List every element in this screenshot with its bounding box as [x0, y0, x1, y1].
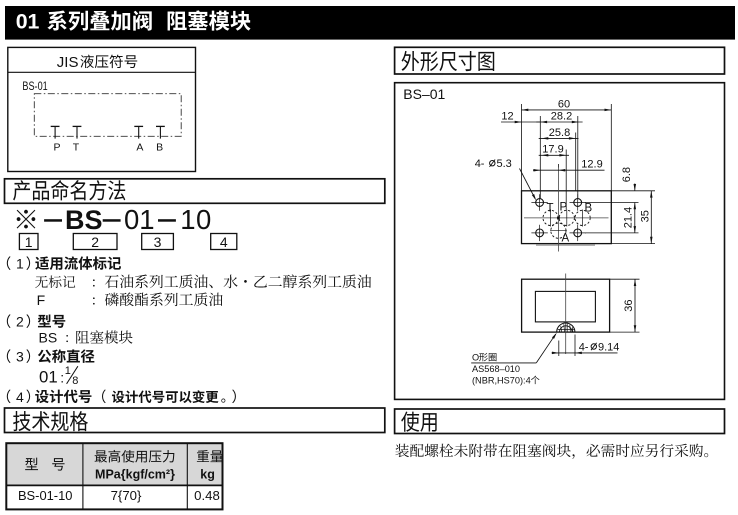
svg-text:B: B	[156, 142, 163, 154]
svg-text:BS-01: BS-01	[22, 79, 47, 93]
svg-text:BS: BS	[65, 205, 103, 235]
svg-text:T: T	[73, 142, 80, 154]
svg-text:25.8: 25.8	[549, 127, 570, 139]
svg-text:60: 60	[558, 98, 570, 110]
svg-text:28.2: 28.2	[551, 111, 572, 123]
svg-text:5.3: 5.3	[497, 158, 512, 170]
svg-text:8: 8	[72, 375, 78, 387]
svg-text:7{70}: 7{70}	[111, 488, 142, 503]
svg-text:4: 4	[220, 234, 228, 250]
svg-text:4-: 4-	[475, 158, 485, 170]
svg-text:(NBR,HS70):4: (NBR,HS70):4	[472, 375, 531, 385]
svg-text:12.9: 12.9	[581, 158, 602, 170]
svg-text:2: 2	[16, 314, 24, 330]
svg-text:01: 01	[39, 367, 58, 386]
svg-text:O: O	[472, 353, 479, 363]
svg-text:AS568–010: AS568–010	[472, 364, 520, 374]
svg-text:BS-01-10: BS-01-10	[18, 488, 72, 503]
svg-text:01: 01	[124, 204, 155, 235]
svg-text:0.48: 0.48	[194, 488, 220, 503]
svg-text:F: F	[37, 292, 46, 308]
svg-text:21.4: 21.4	[622, 207, 634, 228]
svg-text:1: 1	[25, 234, 33, 250]
svg-text:JIS: JIS	[57, 54, 79, 71]
svg-text:36: 36	[623, 299, 635, 311]
svg-text:3: 3	[154, 234, 162, 250]
svg-text:3: 3	[16, 349, 24, 365]
svg-text:2: 2	[91, 234, 99, 250]
svg-text:BS: BS	[39, 330, 58, 346]
svg-text:0: 0	[196, 204, 211, 235]
svg-text:6.8: 6.8	[621, 167, 633, 182]
svg-text:A: A	[136, 142, 143, 154]
svg-text:B: B	[585, 203, 593, 215]
svg-text:4-: 4-	[579, 341, 589, 353]
svg-text:35: 35	[639, 210, 651, 222]
svg-text:9.14: 9.14	[598, 341, 619, 353]
svg-text:P: P	[53, 142, 60, 154]
svg-text:MPa{kgf/cm²}: MPa{kgf/cm²}	[95, 468, 175, 482]
svg-text:A: A	[562, 233, 570, 245]
svg-text::: :	[60, 369, 64, 385]
svg-text:4: 4	[16, 389, 24, 405]
svg-text:1: 1	[65, 365, 71, 377]
svg-text:kg: kg	[200, 468, 215, 482]
svg-text:17.9: 17.9	[542, 144, 563, 156]
svg-text:1: 1	[16, 256, 24, 272]
svg-text:12: 12	[501, 111, 513, 123]
svg-text:BS–01: BS–01	[403, 86, 445, 102]
svg-text:T: T	[547, 203, 554, 215]
svg-text:01: 01	[16, 10, 40, 34]
svg-text:1: 1	[180, 204, 195, 235]
